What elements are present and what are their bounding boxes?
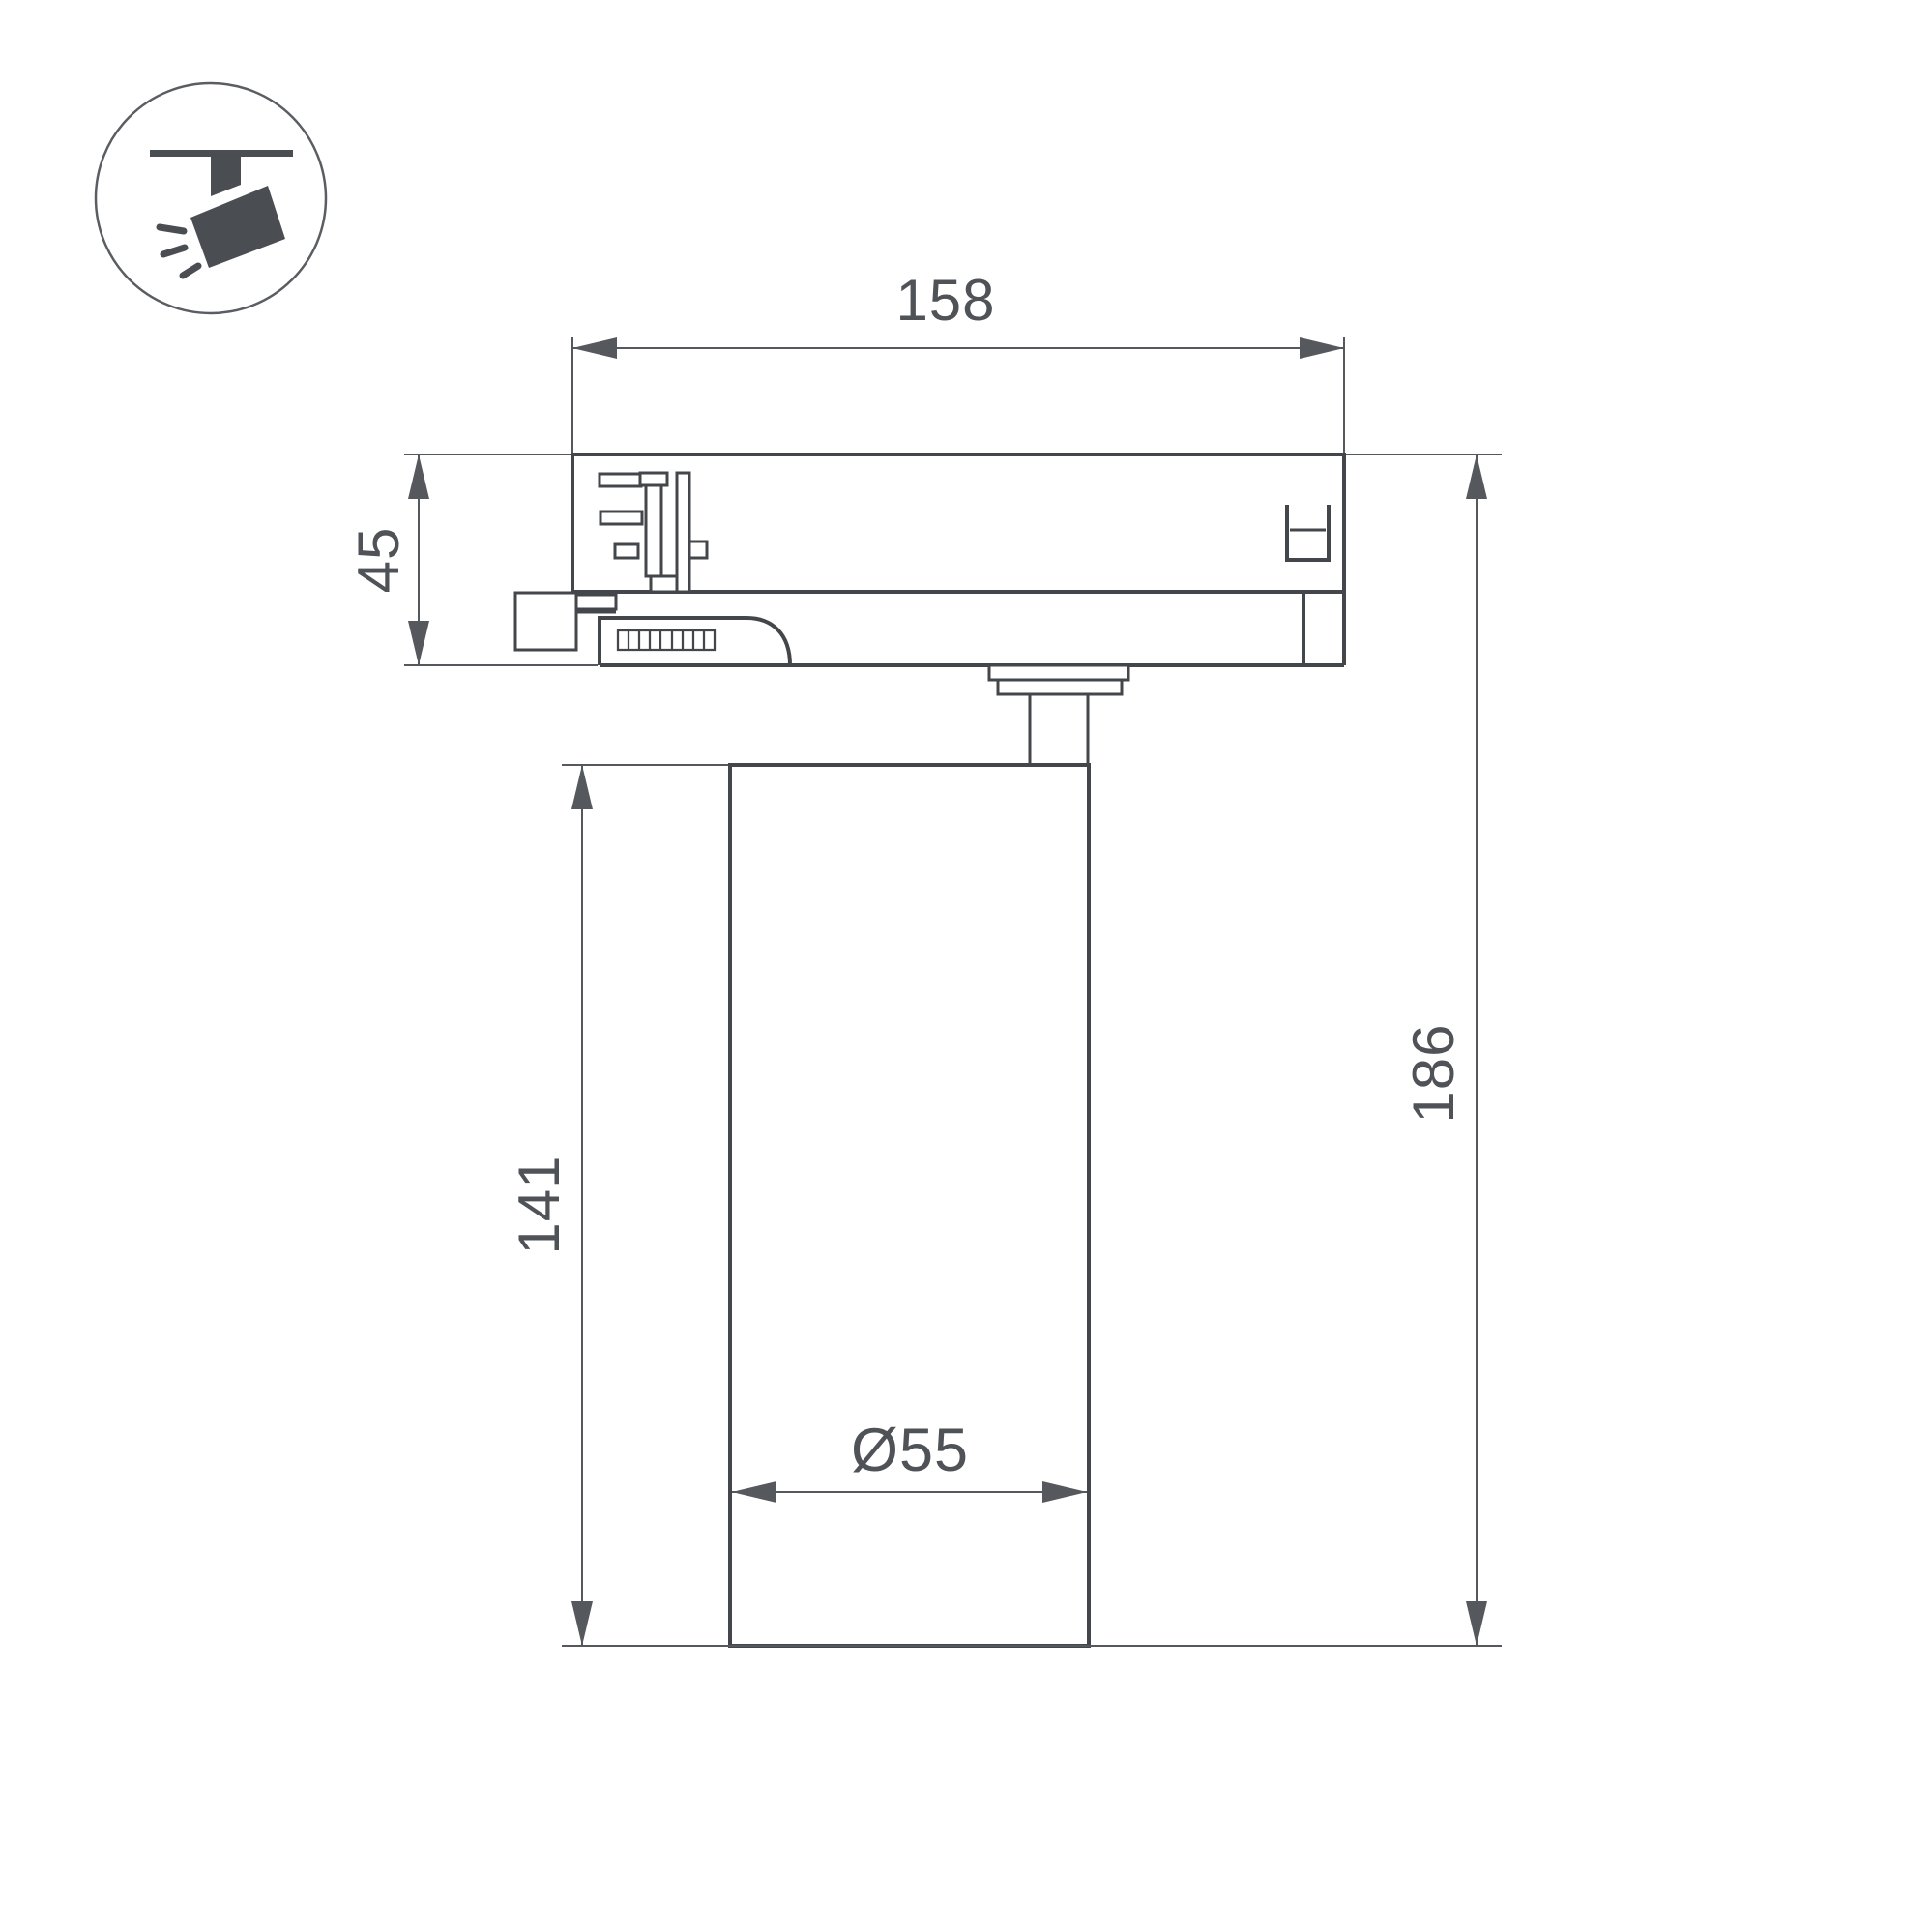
lamp-assembly [730,665,1128,1646]
product-icon [96,83,326,313]
dimension-label-body-height: 141 [507,1155,571,1254]
dimension-label-width: 158 [895,268,995,333]
ratchet-teeth [618,630,715,650]
arrowhead-down [408,621,429,665]
light-ray-icon [183,266,198,276]
spotlight-head-icon [190,186,285,268]
swivel-plate-lower [998,680,1122,694]
dimension-label-adapter-height: 45 [346,527,411,594]
swivel-plate-upper [989,665,1128,680]
icon-circle [96,83,326,313]
release-lever-box [515,593,576,650]
arrowhead-down [1466,1601,1487,1646]
contact-post [646,485,661,576]
dimension-drawing: 158 45 141 186 Ø55 [0,0,1932,1932]
light-ray-icon [160,227,184,231]
drawing-canvas: 158 45 141 186 Ø55 [0,0,1932,1932]
dimension-158: 158 [572,268,1344,453]
arrowhead-up [1466,454,1487,499]
arrowhead-left [572,337,617,359]
arrowhead-right [1300,337,1344,359]
light-ray-icon [163,248,185,254]
dimension-label-total-height: 186 [1401,1023,1466,1123]
arrowhead-up [571,765,593,809]
ratchet-strip [618,630,715,650]
arrowhead-up [408,454,429,499]
dimension-label-diameter: Ø55 [851,1417,969,1484]
lever-clip [576,595,616,609]
track-rail-icon [150,150,293,157]
contact-notch [689,542,707,558]
track-adapter [515,454,1344,665]
contact-post-foot [651,576,677,592]
contact-post-cap [640,473,667,485]
contact-prong [600,512,642,524]
contact-prong [600,474,641,486]
contact-prong [615,544,638,558]
dimension-186: 186 [1346,454,1502,1646]
contact-plate [677,473,689,592]
icon-stem [211,157,241,196]
lamp-cylinder [730,765,1089,1646]
lamp-stem [1030,694,1088,766]
arrowhead-down [571,1601,593,1646]
